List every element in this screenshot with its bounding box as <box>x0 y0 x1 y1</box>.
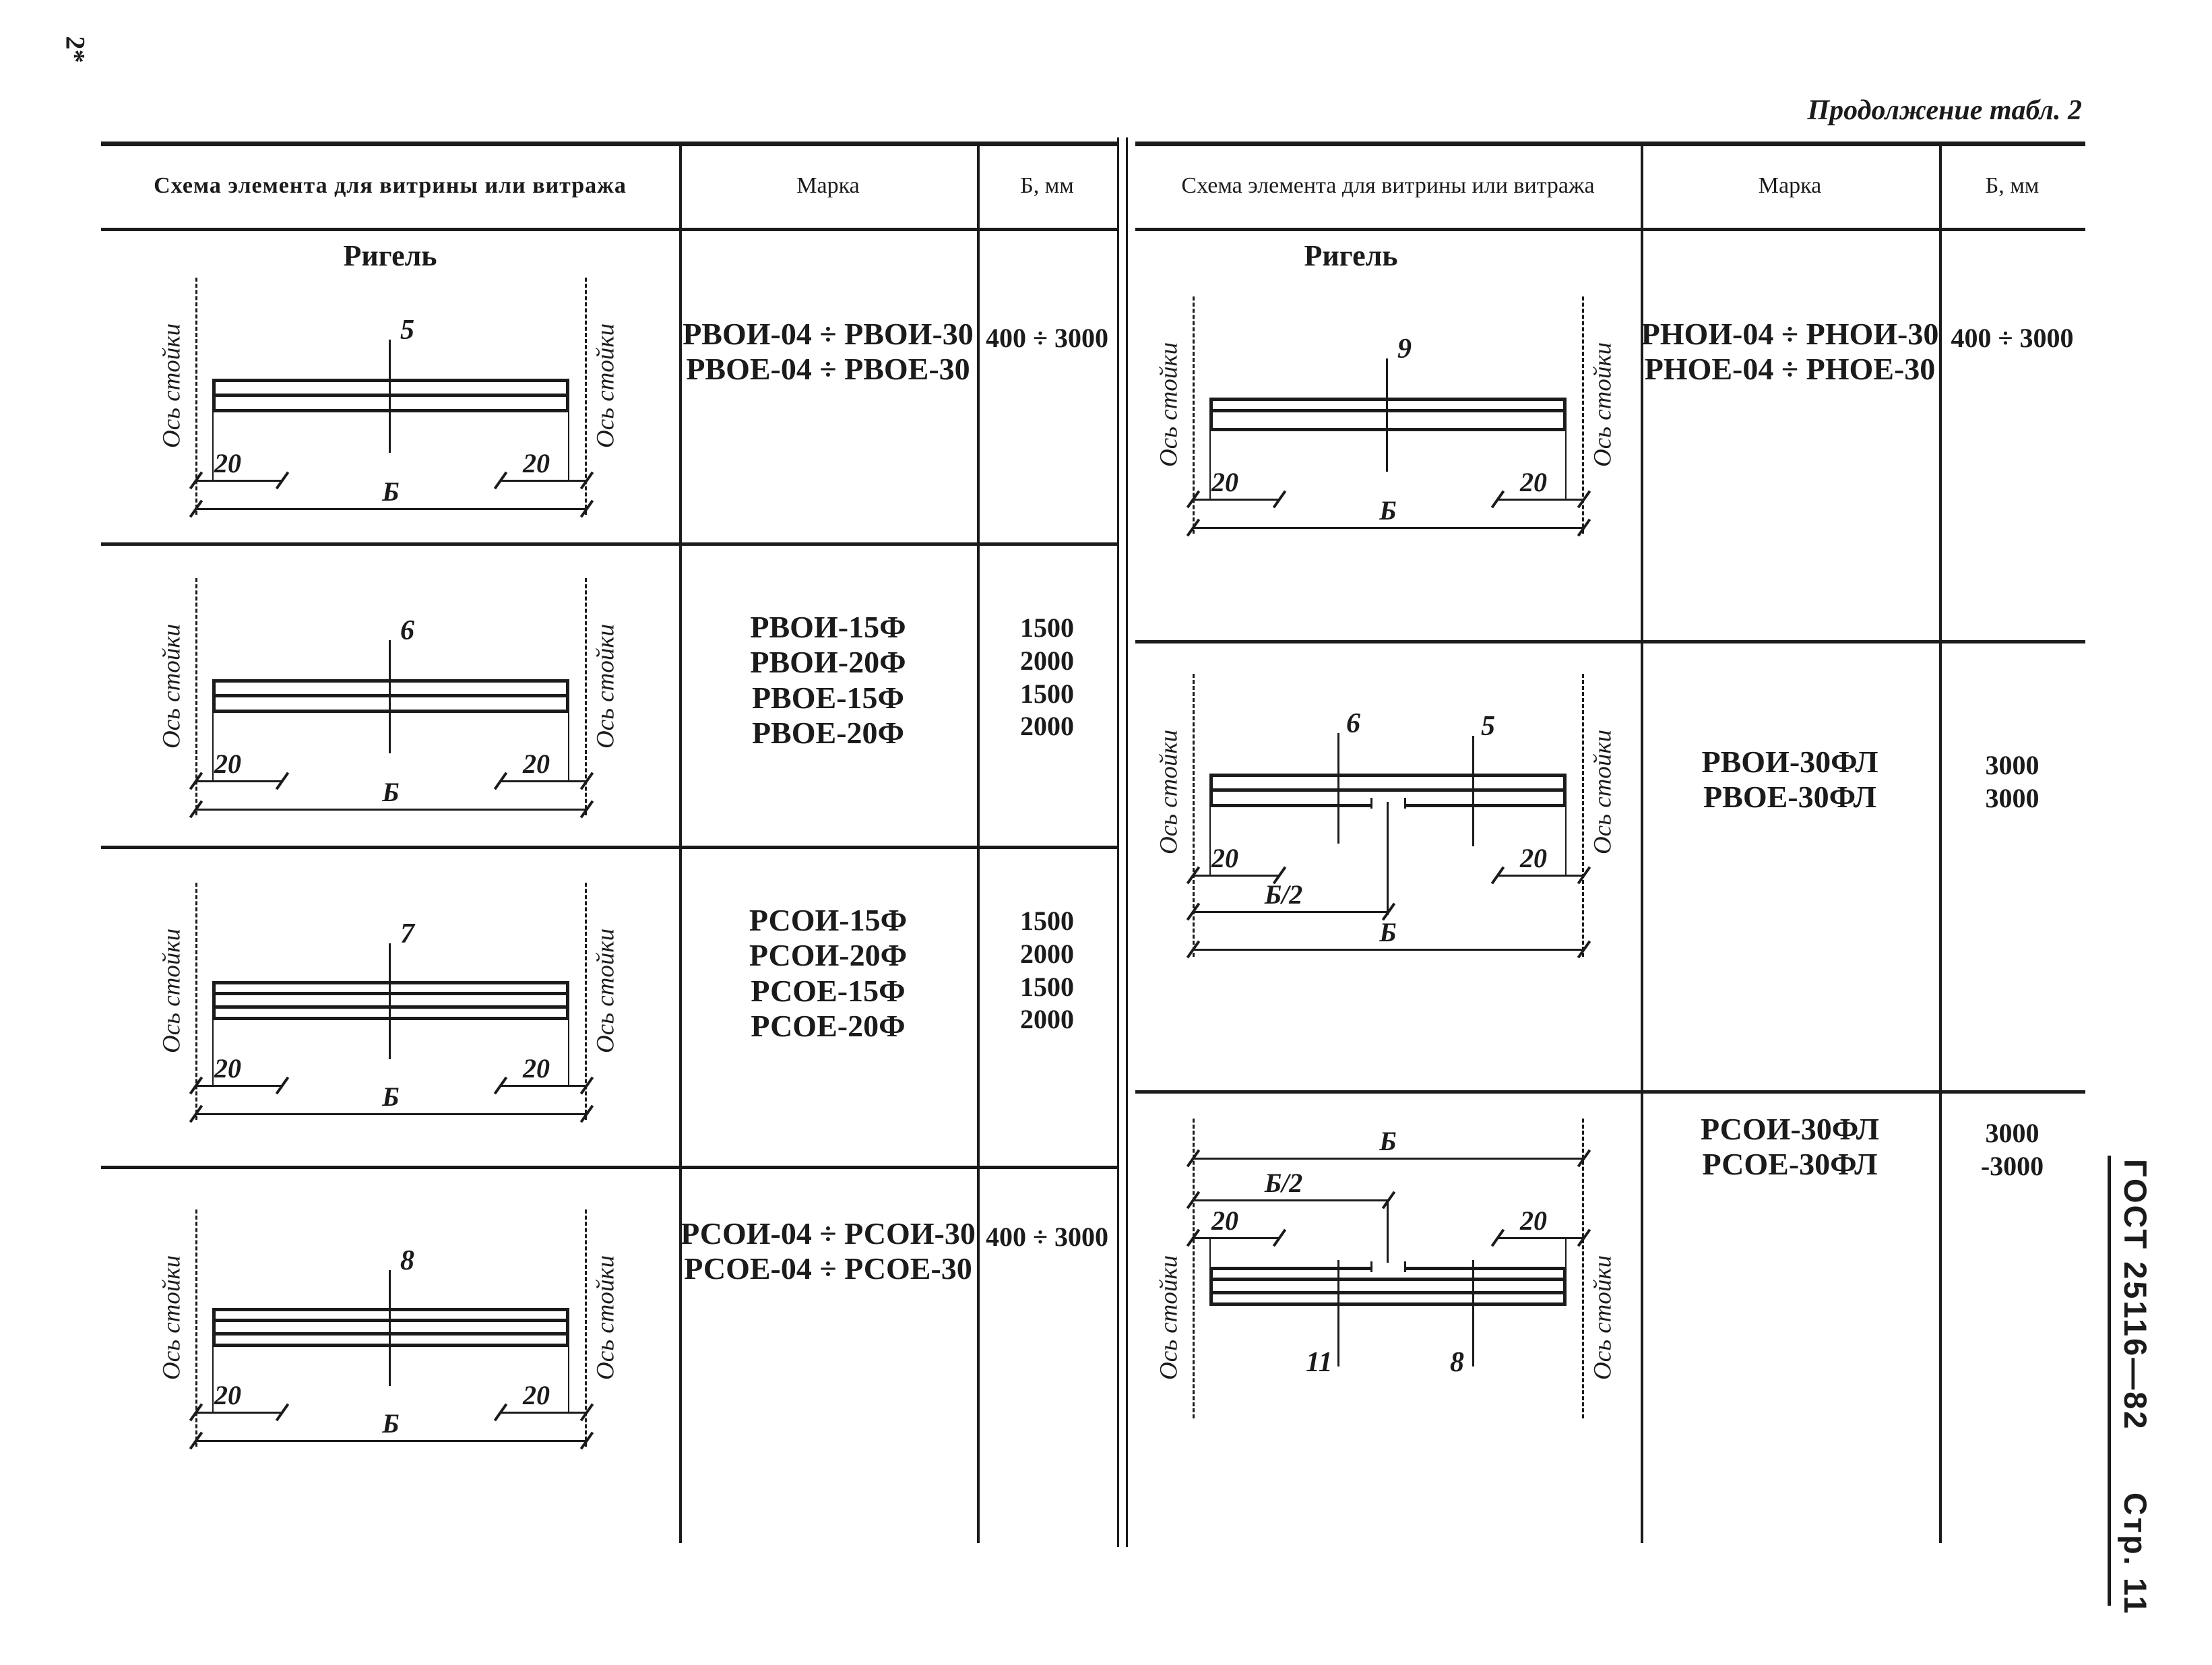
beam <box>212 379 569 412</box>
b-value: 3000 <box>1939 782 2085 815</box>
dim-label-b2: Б/2 <box>1265 879 1303 910</box>
mark-line: РВОИ-04 ÷ РВОИ-30 <box>679 317 977 352</box>
beam-line <box>1211 788 1565 792</box>
axis-line <box>1193 1119 1195 1418</box>
axis-line <box>1582 1119 1584 1418</box>
dim-label-20: 20 <box>523 447 550 479</box>
b-value: 2000 <box>977 1003 1117 1036</box>
grid-line <box>1135 228 2085 231</box>
tick-label: 9 <box>1397 333 1412 365</box>
mark-line: РСОИ-20Ф <box>679 938 977 973</box>
grid-line <box>1117 137 1119 1547</box>
dim-line <box>1193 527 1583 529</box>
notch-edge <box>1370 1261 1372 1272</box>
extension-line <box>568 713 569 782</box>
axis-label: Ось стойки <box>1154 310 1184 499</box>
extension-line <box>1209 1237 1211 1268</box>
dim-line <box>1193 875 1279 877</box>
notch-edge <box>1404 798 1406 809</box>
b-value: 3000 <box>1939 749 2085 782</box>
center-tick <box>1386 358 1388 472</box>
b-cell: 400 ÷ 3000 <box>977 1221 1117 1254</box>
continuation-note: Продолжение табл. 2 <box>1711 94 2082 127</box>
dim-label-20: 20 <box>523 1053 550 1084</box>
mark-cell: РНОИ-04 ÷ РНОИ-30 РНОЕ-04 ÷ РНОЕ-30 <box>1641 317 1939 387</box>
extension-line <box>212 1347 214 1413</box>
mark-cell: РВОИ-30ФЛ РВОЕ-30ФЛ <box>1641 745 1939 815</box>
dim-label-b: Б <box>1379 495 1396 526</box>
mark-line: РСОЕ-30ФЛ <box>1641 1147 1939 1182</box>
dim-line <box>1497 499 1583 501</box>
axis-label: Ось стойки <box>156 592 187 780</box>
dim-label-20: 20 <box>523 748 550 780</box>
beam-line <box>214 992 567 995</box>
dim-label-20: 20 <box>214 748 241 780</box>
beam-diagram: Ось стойки Ось стойки 6 20 20 Б <box>175 578 606 821</box>
b-cell: 1500 2000 1500 2000 <box>977 905 1117 1036</box>
grid-line <box>1135 640 2085 643</box>
center-tick <box>389 640 391 753</box>
extension-line <box>568 412 569 481</box>
beam <box>1209 398 1567 431</box>
tick-label: 6 <box>1346 708 1360 740</box>
beam-diagram: Ось стойки Ось стойки 8 20 20 Б <box>175 1210 606 1452</box>
center-tick <box>1472 1260 1474 1366</box>
axis-label: Ось стойки <box>156 1223 187 1412</box>
dim-line <box>500 480 586 482</box>
b-cell: 3000 -3000 <box>1939 1117 2085 1183</box>
column-header-scheme: Схема элемента для витрины или витража <box>101 145 679 227</box>
b-value: 2000 <box>977 710 1117 743</box>
mark-cell: РВОИ-04 ÷ РВОИ-30 РВОЕ-04 ÷ РВОЕ-30 <box>679 317 977 387</box>
b-value: 2000 <box>977 938 1117 971</box>
dim-label-b2: Б/2 <box>1265 1167 1303 1199</box>
axis-label: Ось стойки <box>156 291 187 480</box>
dim-label-20: 20 <box>1520 1205 1547 1236</box>
axis-label: Ось стойки <box>1587 694 1618 889</box>
b-value: 2000 <box>977 645 1117 678</box>
dim-label-20: 20 <box>523 1379 550 1411</box>
beam <box>1209 1267 1567 1306</box>
beam <box>212 679 569 713</box>
dim-line <box>1193 1158 1583 1160</box>
dim-line <box>1497 875 1583 877</box>
beam-notch <box>1372 1263 1404 1272</box>
mark-line: РВОИ-20Ф <box>679 645 977 680</box>
section-title: Ригель <box>101 239 679 273</box>
tick-label: 5 <box>1481 710 1495 743</box>
dim-line <box>195 1085 282 1087</box>
b-value: -3000 <box>1939 1150 2085 1183</box>
b-cell: 1500 2000 1500 2000 <box>977 612 1117 743</box>
column-header-b: Б, мм <box>977 145 1117 227</box>
b-value: 1500 <box>977 678 1117 711</box>
grid-line <box>101 228 1117 231</box>
b-value: 400 ÷ 3000 <box>977 322 1117 355</box>
dim-line <box>1193 1237 1279 1239</box>
dim-label-20: 20 <box>214 447 241 479</box>
mark-line: РВОЕ-20Ф <box>679 716 977 751</box>
dim-label-b: Б <box>382 1408 399 1439</box>
b-value: 1500 <box>977 905 1117 938</box>
b-cell: 3000 3000 <box>1939 749 2085 815</box>
axis-label: Ось стойки <box>1587 310 1618 499</box>
axis-label: Ось стойки <box>1154 1220 1184 1415</box>
tick-label: 7 <box>400 918 414 950</box>
footer-page: Стр. 11 <box>2117 1493 2154 1615</box>
grid-line <box>101 846 1117 849</box>
center-connector <box>1387 1199 1389 1268</box>
dim-label-20: 20 <box>1211 1205 1238 1236</box>
extension-line <box>1565 431 1567 500</box>
mark-line: РСОЕ-20Ф <box>679 1009 977 1044</box>
mark-cell: РВОИ-15Ф РВОИ-20Ф РВОЕ-15Ф РВОЕ-20Ф <box>679 610 977 751</box>
grid-line <box>101 1166 1117 1169</box>
dim-label-20: 20 <box>1520 842 1547 874</box>
mark-line: РСОИ-30ФЛ <box>1641 1112 1939 1147</box>
mark-cell: РСОИ-30ФЛ РСОЕ-30ФЛ <box>1641 1112 1939 1183</box>
beam-line <box>214 1319 567 1322</box>
dim-line <box>195 1113 586 1115</box>
column-header-mark: Марка <box>1641 145 1939 227</box>
dim-line <box>195 508 586 510</box>
mark-line: РСОЕ-15Ф <box>679 974 977 1009</box>
extension-line <box>1565 1237 1567 1268</box>
tick-label: 5 <box>400 314 414 346</box>
footer-gost: ГОСТ 25116—82 <box>2117 1159 2154 1431</box>
center-tick <box>1472 736 1474 846</box>
axis-label: Ось стойки <box>590 291 621 480</box>
beam-line <box>214 1005 567 1009</box>
dim-line <box>1497 1237 1583 1239</box>
b-value: 400 ÷ 3000 <box>977 1221 1117 1254</box>
dim-line <box>1193 949 1583 951</box>
b-value: 3000 <box>1939 1117 2085 1150</box>
tick-label: 8 <box>1450 1346 1464 1379</box>
beam-line <box>1211 1291 1565 1294</box>
b-cell: 400 ÷ 3000 <box>977 322 1117 355</box>
mark-line: РВОИ-30ФЛ <box>1641 745 1939 780</box>
extension-line <box>568 1347 569 1413</box>
center-tick <box>389 1270 391 1386</box>
mark-line: РСОЕ-04 ÷ РСОЕ-30 <box>679 1251 977 1286</box>
b-cell: 400 ÷ 3000 <box>1939 322 2085 355</box>
mark-line: РВОЕ-30ФЛ <box>1641 780 1939 815</box>
dim-label-b: Б <box>1379 916 1396 948</box>
notch-edge <box>1370 798 1372 809</box>
grid-line <box>1126 137 1128 1547</box>
dim-line <box>500 1412 586 1414</box>
dim-line <box>195 780 282 782</box>
dim-label-20: 20 <box>214 1053 241 1084</box>
b-value: 1500 <box>977 612 1117 645</box>
beam <box>212 981 569 1020</box>
center-tick <box>1337 1260 1339 1366</box>
dim-label-b: Б <box>382 1081 399 1112</box>
grid-line <box>1135 1090 2085 1094</box>
mark-line: РНОИ-04 ÷ РНОИ-30 <box>1641 317 1939 352</box>
dim-label-b: Б <box>382 776 399 808</box>
tick-label: 8 <box>400 1245 414 1277</box>
corner-mark: 2* <box>60 36 92 63</box>
axis-label: Ось стойки <box>1587 1220 1618 1415</box>
mark-line: РСОИ-04 ÷ РСОИ-30 <box>679 1216 977 1251</box>
mark-line: РВОИ-15Ф <box>679 610 977 645</box>
beam-diagram: Ось стойки Ось стойки 7 20 20 Б <box>175 883 606 1125</box>
tick-label: 6 <box>400 615 414 647</box>
extension-line <box>568 1020 569 1086</box>
dim-line <box>500 780 586 782</box>
axis-label: Ось стойки <box>590 1223 621 1412</box>
axis-label: Ось стойки <box>590 896 621 1085</box>
dim-label-b: Б <box>382 476 399 507</box>
center-connector <box>1387 802 1389 915</box>
extension-line <box>1209 807 1211 876</box>
section-title: Ригель <box>1135 239 1567 273</box>
mark-line: РСОИ-15Ф <box>679 903 977 938</box>
b-value: 1500 <box>977 971 1117 1004</box>
mark-line: РНОЕ-04 ÷ РНОЕ-30 <box>1641 352 1939 387</box>
axis-label: Ось стойки <box>590 592 621 780</box>
dim-label-20: 20 <box>1211 842 1238 874</box>
extension-line <box>1209 431 1211 500</box>
dim-label-20: 20 <box>214 1379 241 1411</box>
notch-edge <box>1404 1261 1406 1272</box>
beam-line <box>1211 409 1565 412</box>
dim-line <box>1193 499 1279 501</box>
mark-line: РВОЕ-04 ÷ РВОЕ-30 <box>679 352 977 387</box>
extension-line <box>212 1020 214 1086</box>
center-tick <box>389 943 391 1059</box>
dim-line <box>195 809 586 811</box>
beam-line <box>214 1332 567 1336</box>
beam-line <box>214 694 567 697</box>
extension-line <box>212 713 214 782</box>
beam-diagram: Ось стойки Ось стойки 5 20 20 Б <box>175 278 606 520</box>
grid-line <box>101 542 1117 546</box>
center-tick <box>389 340 391 453</box>
dim-label-20: 20 <box>1211 466 1238 498</box>
column-header-b: Б, мм <box>1939 145 2085 227</box>
column-header-scheme: Схема элемента для витрины или витража <box>1135 145 1641 227</box>
beam-line <box>214 394 567 397</box>
dim-line <box>195 1412 282 1414</box>
dim-line <box>1193 911 1388 913</box>
beam-diagram: Ось стойки Ось стойки 9 20 20 Б <box>1172 296 1604 539</box>
extension-line <box>212 412 214 481</box>
beam-line <box>1211 1278 1565 1281</box>
center-tick <box>1337 733 1339 844</box>
document-page: 2* Продолжение табл. 2 Схема элемента дл… <box>0 0 2212 1665</box>
dim-label-b: Б <box>1379 1125 1396 1157</box>
mark-line: РВОЕ-15Ф <box>679 681 977 716</box>
axis-label: Ось стойки <box>1154 694 1184 889</box>
beam <box>212 1308 569 1347</box>
dim-line <box>1193 1199 1388 1201</box>
axis-line <box>1582 674 1584 957</box>
dim-line <box>500 1085 586 1087</box>
beam-diagram: Ось стойки Ось стойки 6 5 20 20 Б/2 Б <box>1172 674 1604 964</box>
dim-line <box>195 1440 586 1442</box>
mark-cell: РСОИ-04 ÷ РСОИ-30 РСОЕ-04 ÷ РСОЕ-30 <box>679 1216 977 1287</box>
extension-line <box>1565 807 1567 876</box>
b-value: 400 ÷ 3000 <box>1939 322 2085 355</box>
column-header-mark: Марка <box>679 145 977 227</box>
footer-rule <box>2108 1156 2111 1606</box>
tick-label: 11 <box>1306 1346 1333 1379</box>
axis-label: Ось стойки <box>156 896 187 1085</box>
mark-cell: РСОИ-15Ф РСОИ-20Ф РСОЕ-15Ф РСОЕ-20Ф <box>679 903 977 1044</box>
beam-diagram: Ось стойки Ось стойки Б Б/2 20 20 11 8 <box>1172 1119 1604 1428</box>
dim-label-20: 20 <box>1520 466 1547 498</box>
dim-line <box>195 480 282 482</box>
